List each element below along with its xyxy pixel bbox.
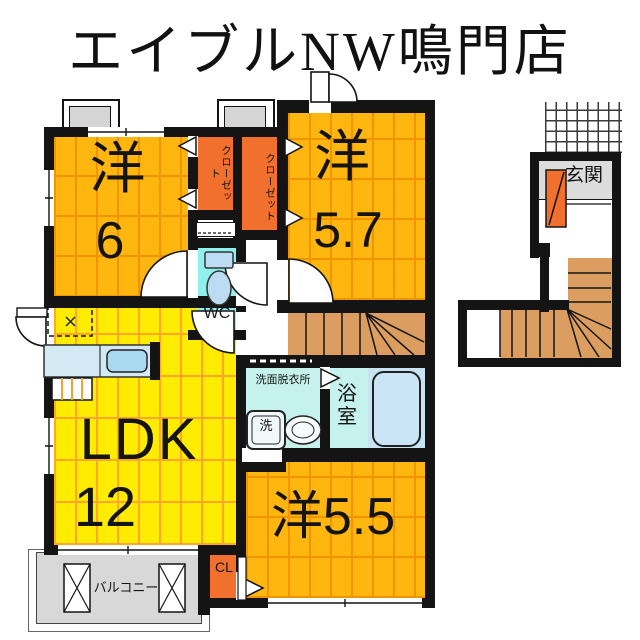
room-ldk-size: 12 — [50, 478, 160, 537]
window-lines — [58, 546, 198, 554]
stair-winders-1f — [567, 309, 611, 357]
stair-treads-2f — [306, 313, 360, 355]
folding-door-arrow — [179, 190, 196, 208]
folding-door-arrow — [245, 579, 263, 597]
folding-door-arrow — [179, 137, 196, 155]
window-lines — [45, 170, 53, 226]
door-arc-left — [16, 317, 46, 346]
door-arc-yo57 — [289, 259, 333, 303]
window-lines — [45, 418, 53, 474]
window-lines — [268, 599, 422, 607]
entrance-label: 玄関 — [558, 166, 610, 186]
toilet-tank-icon — [205, 252, 233, 268]
kitchen-sink-icon — [107, 350, 147, 372]
room-yo55-label: 洋5.5 — [245, 490, 421, 545]
cl-door-panel — [238, 557, 246, 600]
door-leaf-top — [311, 72, 329, 102]
room-ldk-name: LDK — [55, 410, 223, 471]
sink-icon — [285, 416, 321, 444]
floorplan-canvas: エイブルNW鳴門店 — [0, 0, 640, 640]
door-arc-top — [329, 74, 357, 102]
kitchen-counter-end — [150, 342, 160, 380]
window-lines — [88, 128, 164, 136]
cooktop-x-mark — [66, 317, 75, 326]
cl-label: CL — [210, 558, 238, 576]
bath-label: 浴室 — [334, 383, 360, 429]
stair-treads-1f-upper — [568, 273, 611, 302]
door-leaf-left — [17, 308, 47, 317]
room-yo6-size: 6 — [62, 214, 158, 269]
closet1-label: クローゼット — [201, 141, 231, 207]
room-yo57-size: 5.7 — [296, 204, 400, 257]
closet2-label: クローゼット — [245, 149, 275, 225]
room-yo6-kanji: 洋 — [62, 140, 174, 199]
wc-label: WC — [198, 306, 236, 323]
stair-treads-1f — [500, 310, 554, 357]
stair-winders-2f — [366, 313, 424, 355]
balcony-label: バルコニー — [86, 581, 166, 595]
room-yo57-kanji: 洋 — [302, 128, 382, 187]
bathtub-icon — [373, 372, 420, 446]
folding-door-arrow — [285, 138, 302, 156]
washer-label: 洗 — [247, 419, 285, 433]
toilet-bowl-icon — [207, 271, 231, 305]
washroom-label: 洗面脱衣所 — [246, 375, 320, 387]
